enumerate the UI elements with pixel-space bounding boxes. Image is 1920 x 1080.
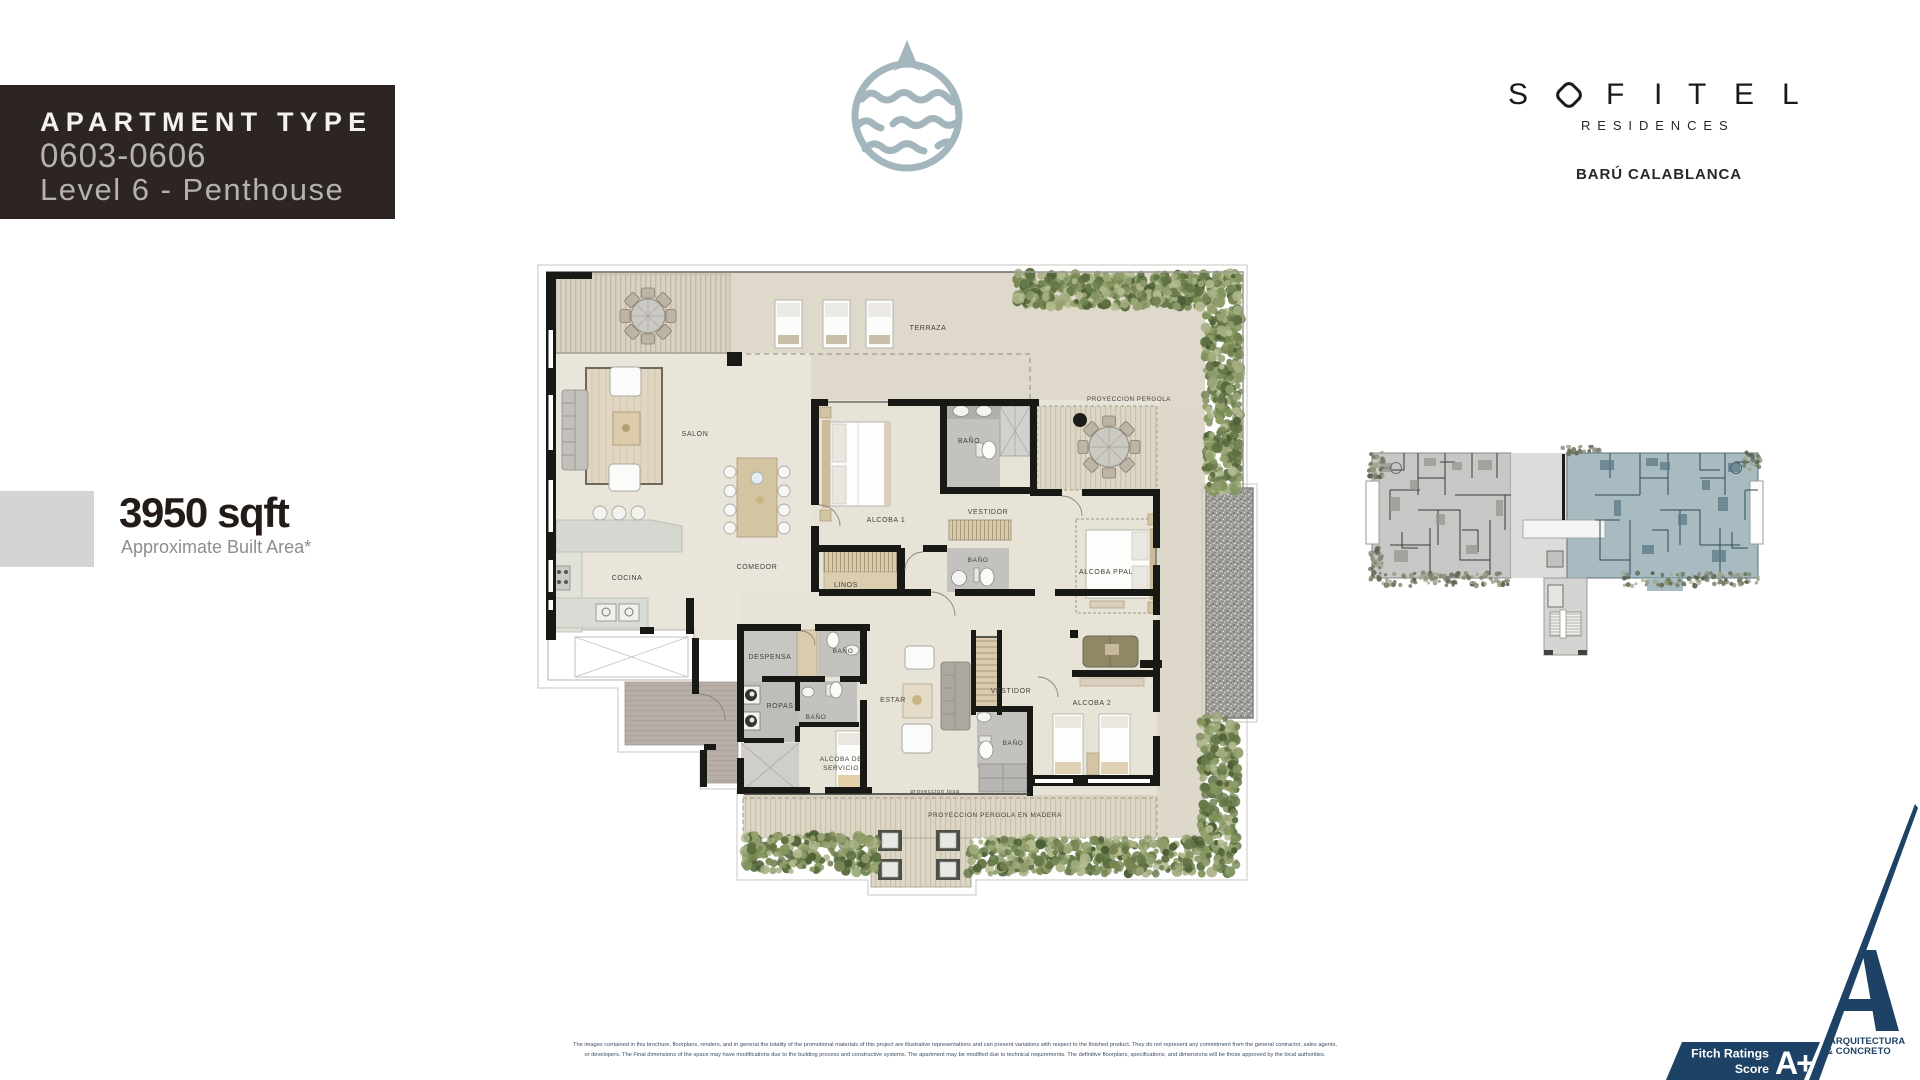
svg-text:BAÑO: BAÑO bbox=[833, 646, 854, 655]
svg-text:BAÑO: BAÑO bbox=[1003, 738, 1024, 747]
svg-text:TERRAZA: TERRAZA bbox=[910, 325, 947, 332]
svg-text:BAÑO: BAÑO bbox=[806, 712, 827, 721]
svg-text:PROYECCION PERGOLA EN MADERA: PROYECCION PERGOLA EN MADERA bbox=[928, 812, 1062, 819]
svg-text:COMEDOR: COMEDOR bbox=[737, 564, 778, 571]
svg-text:ALCOBA PPAL: ALCOBA PPAL bbox=[1079, 569, 1133, 576]
svg-text:ALCOBA 1: ALCOBA 1 bbox=[867, 517, 906, 524]
svg-text:SALON: SALON bbox=[682, 431, 709, 438]
svg-text:LINOS: LINOS bbox=[834, 582, 858, 589]
svg-text:ALCOBA 2: ALCOBA 2 bbox=[1073, 700, 1112, 707]
svg-text:SERVICIO: SERVICIO bbox=[823, 765, 859, 772]
svg-text:A+: A+ bbox=[1775, 1045, 1814, 1080]
svg-text:VESTIDOR: VESTIDOR bbox=[968, 509, 1009, 516]
svg-text:COCINA: COCINA bbox=[612, 575, 643, 582]
svg-text:ALCOBA DE: ALCOBA DE bbox=[820, 756, 862, 763]
svg-text:PROYECCION PERGOLA: PROYECCION PERGOLA bbox=[1087, 396, 1171, 403]
svg-text:Score: Score bbox=[1735, 1062, 1769, 1076]
svg-text:& CONCRETO: & CONCRETO bbox=[1826, 1045, 1891, 1056]
svg-text:BAÑO: BAÑO bbox=[958, 436, 980, 445]
svg-text:Fitch Ratings: Fitch Ratings bbox=[1691, 1047, 1769, 1061]
svg-text:BAÑO: BAÑO bbox=[968, 555, 989, 564]
svg-text:ROPAS: ROPAS bbox=[767, 703, 794, 710]
svg-text:proyeccion losa: proyeccion losa bbox=[910, 789, 959, 795]
svg-text:VESTIDOR: VESTIDOR bbox=[991, 688, 1032, 695]
svg-text:ESTAR: ESTAR bbox=[880, 697, 906, 704]
svg-text:DESPENSA: DESPENSA bbox=[749, 654, 792, 661]
